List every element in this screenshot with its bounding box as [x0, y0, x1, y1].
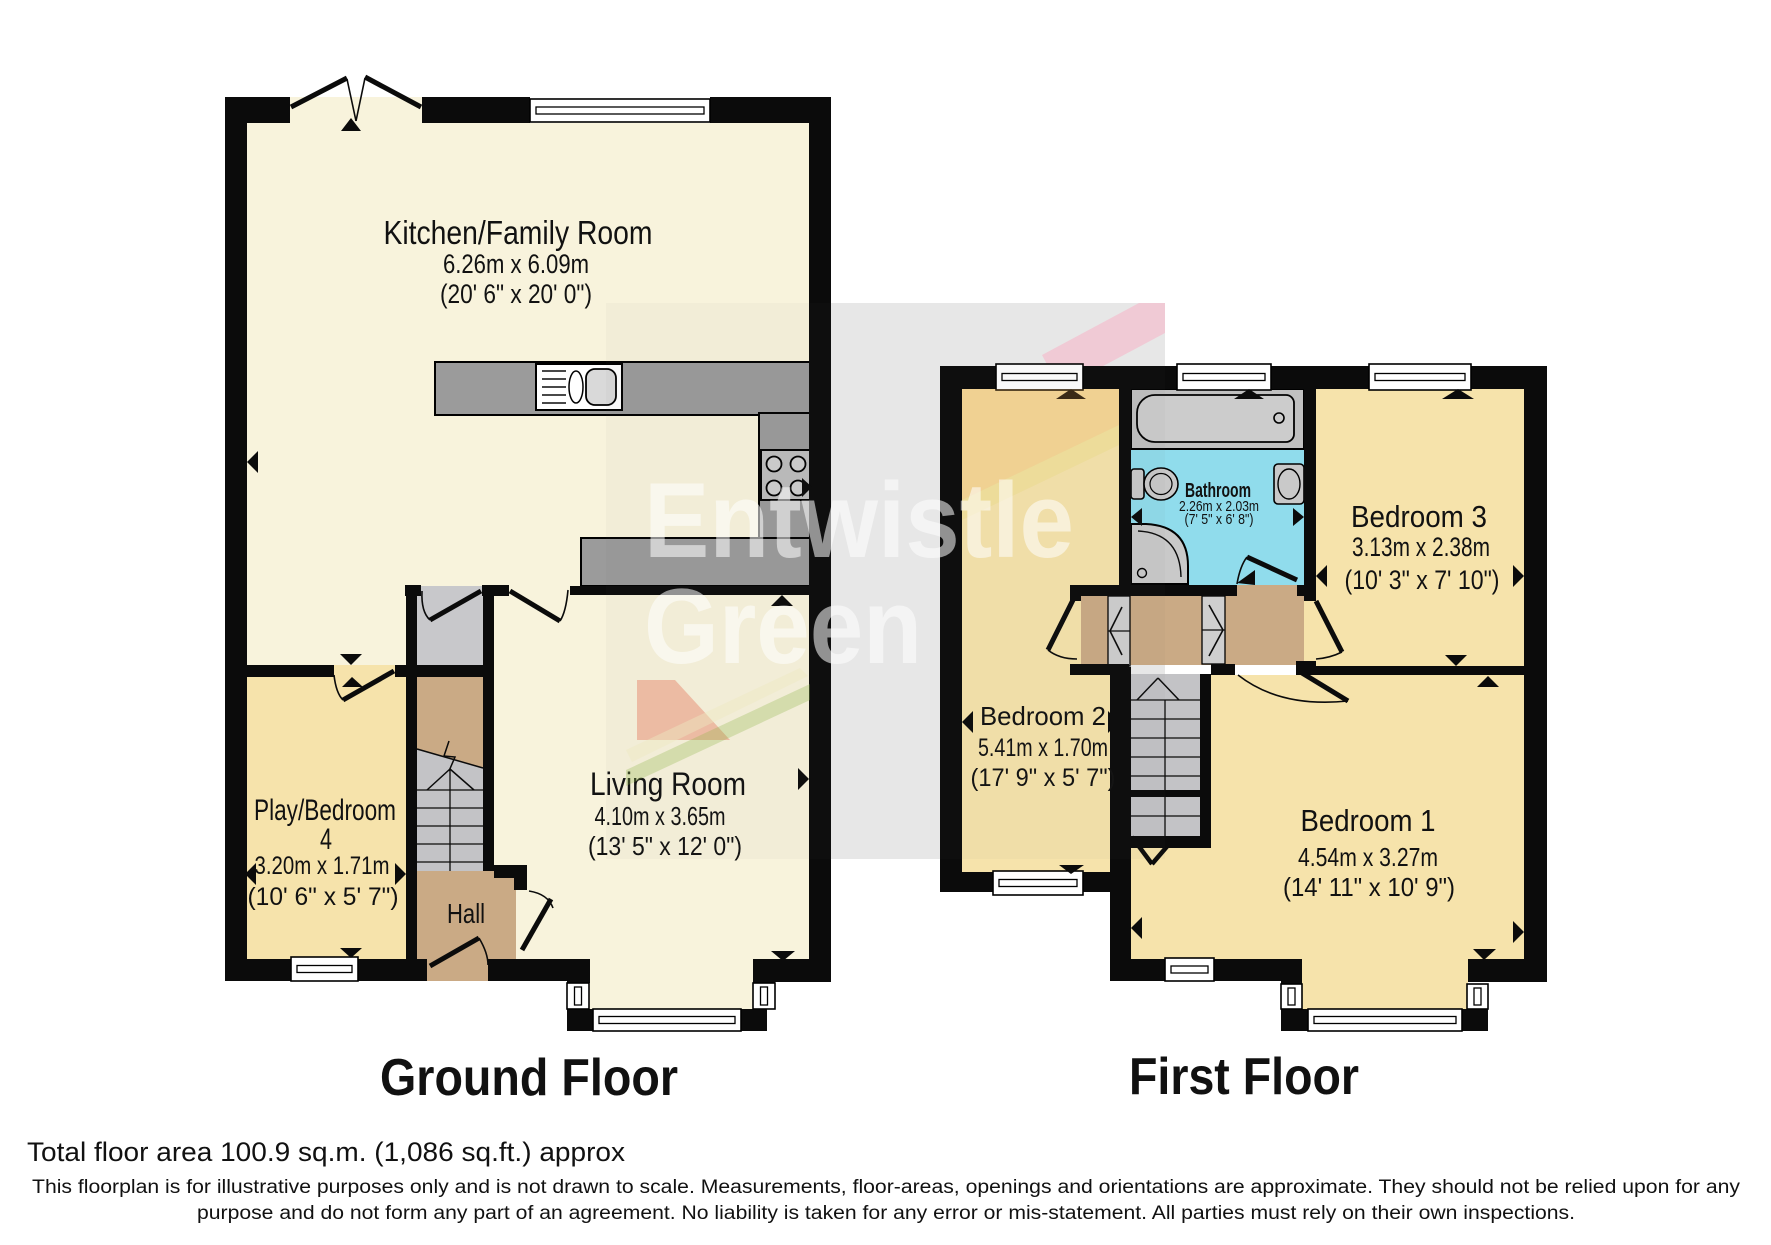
svg-text:Total floor area 100.9 sq.m. (: Total floor area 100.9 sq.m. (1,086 sq.f… [27, 1137, 626, 1167]
svg-text:Kitchen/Family Room: Kitchen/Family Room [384, 214, 653, 251]
svg-text:(7' 5" x 6' 8"): (7' 5" x 6' 8") [1185, 511, 1254, 528]
svg-text:3.13m x 2.38m: 3.13m x 2.38m [1352, 532, 1490, 562]
svg-text:First Floor: First Floor [1129, 1048, 1359, 1106]
svg-text:(20' 6" x 20' 0"): (20' 6" x 20' 0") [440, 279, 592, 309]
svg-text:Ground Floor: Ground Floor [380, 1049, 678, 1107]
svg-text:Green: Green [644, 566, 922, 686]
svg-text:Bedroom 3: Bedroom 3 [1351, 499, 1487, 534]
svg-text:(10' 6" x 5' 7"): (10' 6" x 5' 7") [248, 883, 399, 911]
svg-text:(14' 11" x 10' 9"): (14' 11" x 10' 9") [1283, 872, 1455, 902]
svg-text:4.54m x 3.27m: 4.54m x 3.27m [1298, 842, 1438, 872]
svg-text:This floorplan is for illustra: This floorplan is for illustrative purpo… [32, 1177, 1741, 1198]
svg-text:Hall: Hall [447, 898, 485, 929]
svg-text:purpose and do not form any pa: purpose and do not form any part of an a… [197, 1203, 1575, 1224]
svg-text:3.20m x 1.71m: 3.20m x 1.71m [255, 852, 390, 880]
svg-text:(10' 3" x 7' 10"): (10' 3" x 7' 10") [1345, 565, 1500, 595]
svg-text:6.26m x 6.09m: 6.26m x 6.09m [443, 249, 589, 279]
svg-text:Bedroom 1: Bedroom 1 [1301, 803, 1436, 838]
svg-text:Entwistle: Entwistle [644, 460, 1074, 580]
